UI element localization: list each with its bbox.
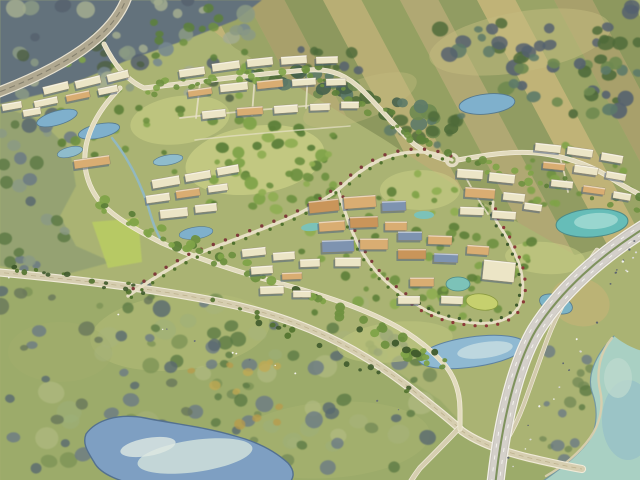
building xyxy=(280,272,302,282)
building xyxy=(455,168,483,181)
building xyxy=(490,210,516,222)
building xyxy=(249,265,273,277)
building xyxy=(324,78,346,88)
building xyxy=(339,102,359,111)
building xyxy=(314,56,338,66)
aerial-rendering xyxy=(0,0,640,480)
building xyxy=(235,106,263,118)
building xyxy=(380,201,406,214)
pond-campus-2 xyxy=(414,211,434,219)
building xyxy=(463,187,495,201)
building xyxy=(432,253,458,265)
building xyxy=(426,235,452,247)
building xyxy=(298,259,320,270)
building xyxy=(396,232,422,243)
building xyxy=(408,278,434,289)
building xyxy=(396,296,420,306)
pond-se-core xyxy=(446,277,470,291)
building xyxy=(333,258,361,269)
building xyxy=(480,259,516,284)
building xyxy=(348,216,378,230)
building xyxy=(465,245,489,258)
building xyxy=(317,220,345,234)
building xyxy=(458,207,484,218)
building xyxy=(439,296,463,307)
building xyxy=(342,195,376,211)
building xyxy=(358,239,388,252)
building xyxy=(279,55,307,67)
lake-se-patch2 xyxy=(604,358,632,398)
site-plan-canvas xyxy=(0,0,640,480)
building xyxy=(290,78,316,89)
building xyxy=(291,291,311,300)
building xyxy=(308,103,330,113)
building xyxy=(272,104,298,116)
building xyxy=(383,222,407,233)
building xyxy=(396,249,426,261)
building xyxy=(258,286,284,297)
building xyxy=(271,251,295,263)
building xyxy=(320,239,354,254)
